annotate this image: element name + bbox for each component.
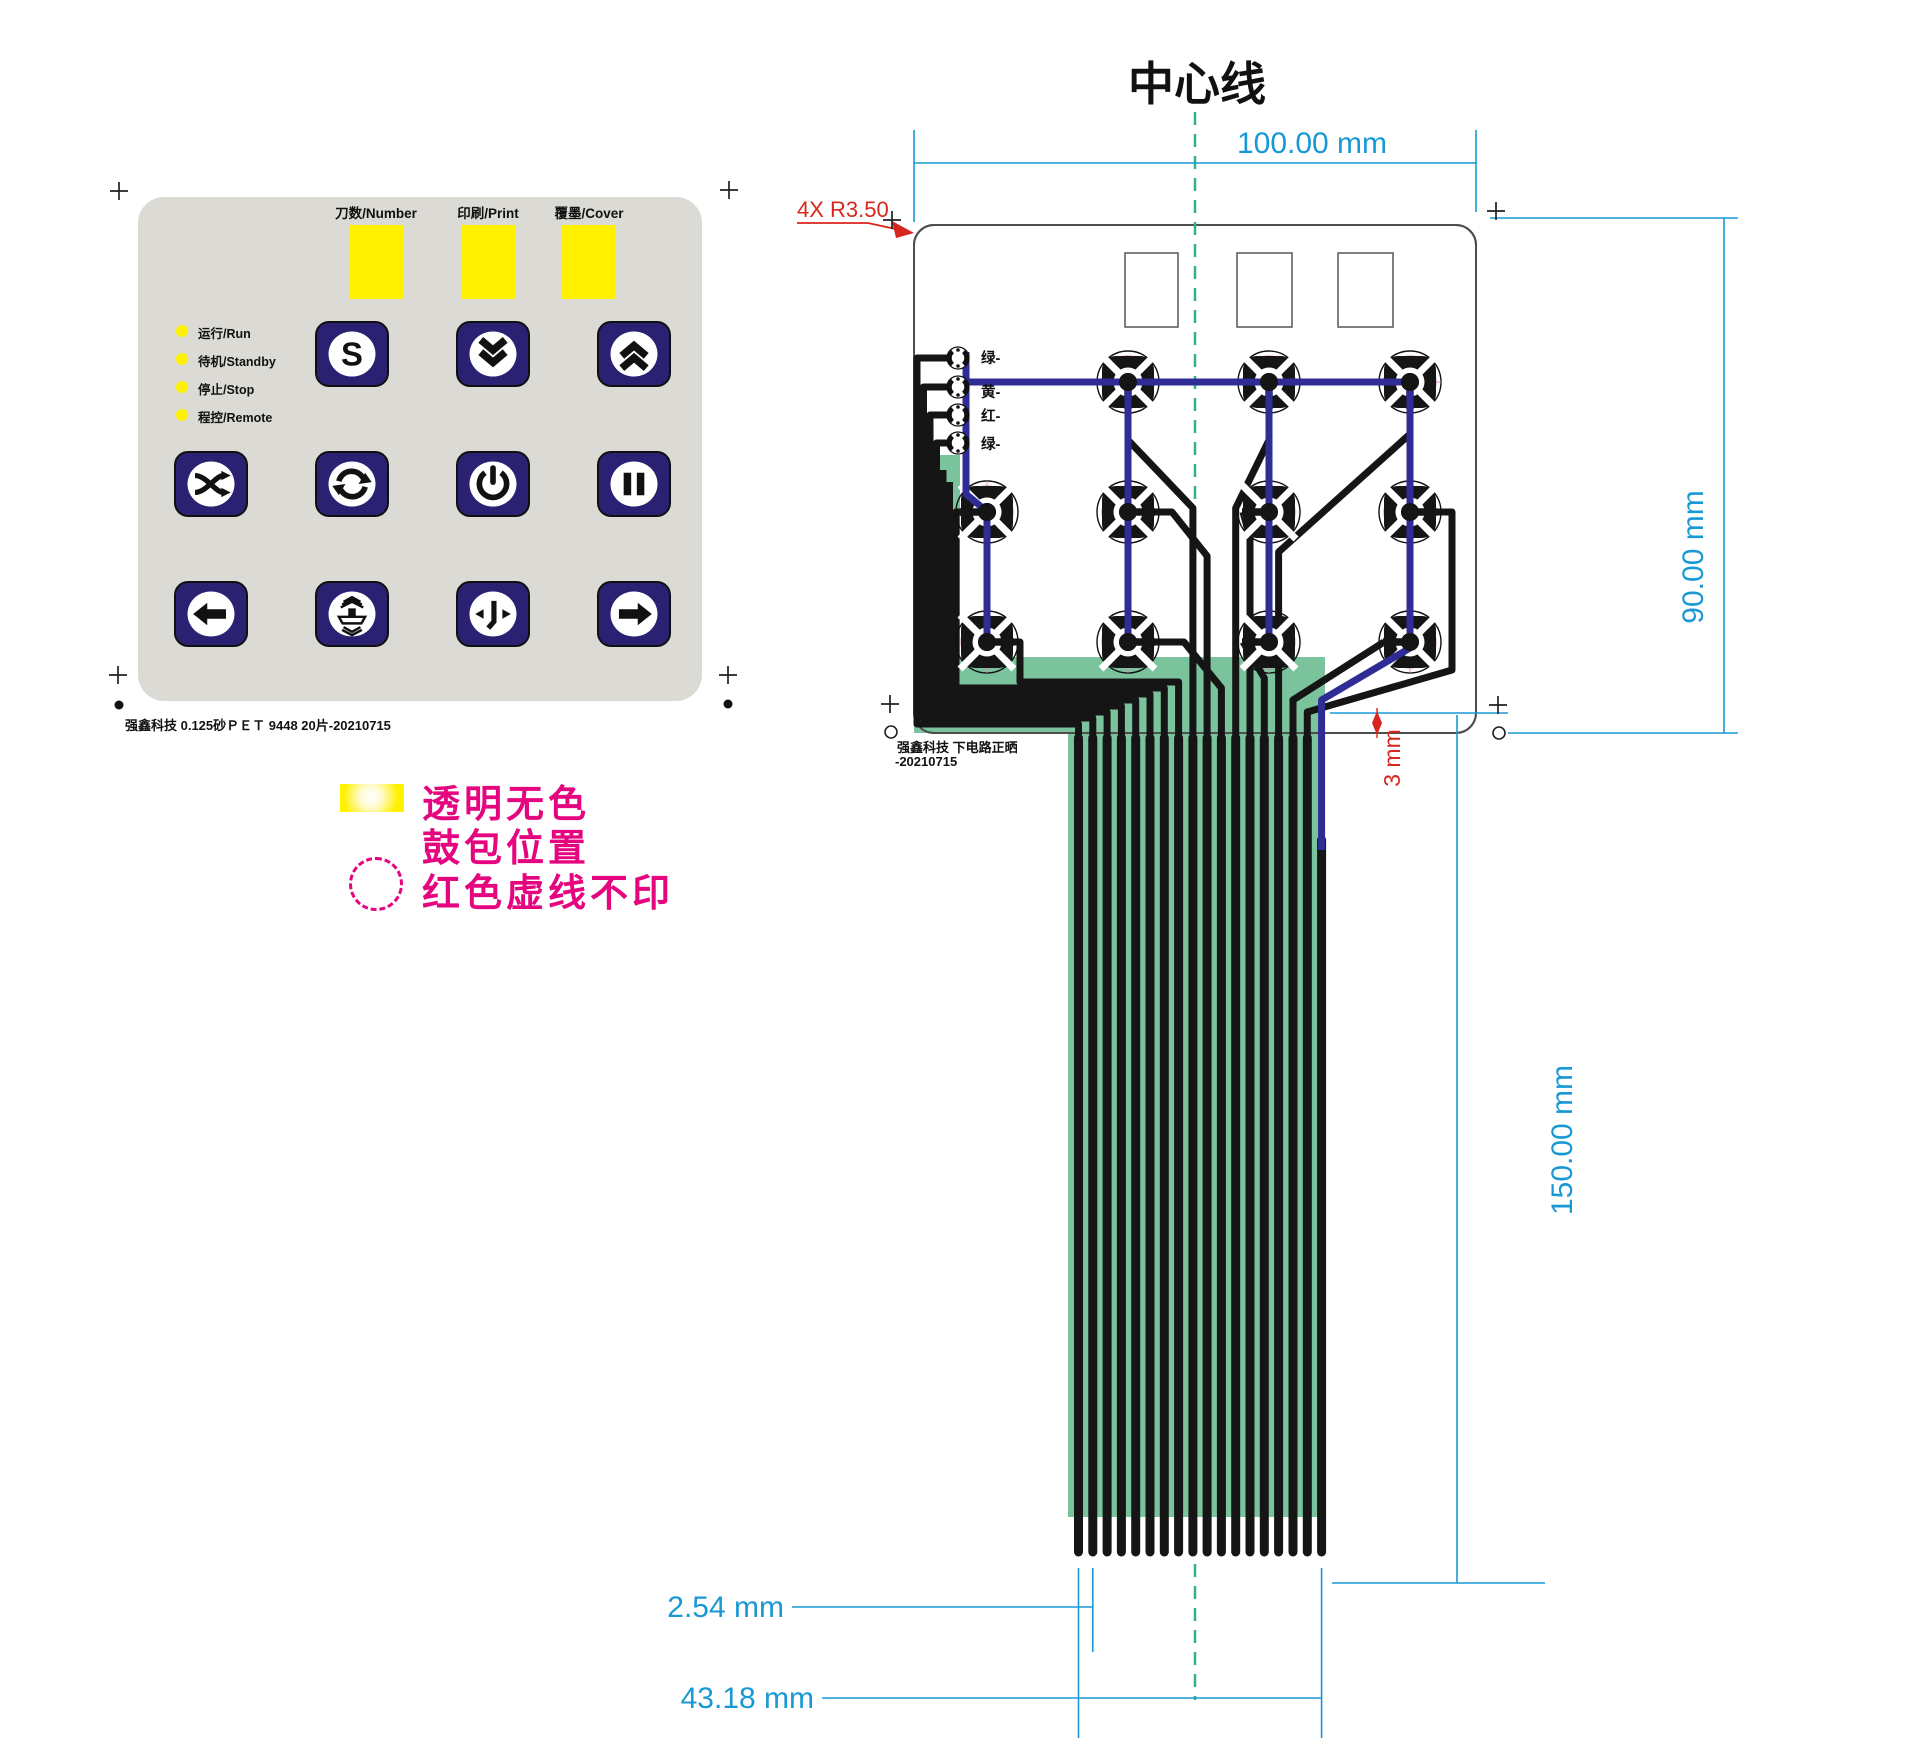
dim-tail-length-label: 150.00 mm: [1546, 1065, 1579, 1215]
registration-dots: [115, 700, 733, 710]
circuit-footer-line2: -20210715: [895, 754, 957, 769]
drawing-canvas: 刀数/Number 印刷/Print 覆墨/Cover 运行/Run 待机/St…: [0, 0, 1920, 1752]
wire-label-green2: 绿-: [981, 435, 1000, 453]
wire-label-green1: 绿-: [981, 349, 1000, 367]
dim-offset-label: 3 mm: [1379, 729, 1405, 787]
dim-width-label: 100.00 mm: [1237, 127, 1387, 160]
corner-radius-note: 4X R3.50: [797, 197, 889, 222]
dim-tail-width-label: 43.18 mm: [681, 1682, 814, 1715]
wire-label-red: 红-: [981, 407, 1000, 425]
dim-height-label: 90.00 mm: [1677, 490, 1710, 623]
dim-tail-width: [822, 1568, 1322, 1738]
dim-tail-length: [1332, 715, 1545, 1583]
circuit-display-windows: [1125, 253, 1393, 327]
corner-radius-arrow: [797, 221, 914, 238]
dim-pitch-label: 2.54 mm: [667, 1591, 784, 1624]
dim-pitch: [792, 1568, 1093, 1738]
dim-height: [1490, 218, 1738, 733]
wire-label-yellow: 黄-: [981, 383, 1000, 401]
drawing-title: 中心线: [1128, 58, 1266, 110]
circuit-drawing: 绿- 黄- 红- 绿- 中心线 100.00 mm 90.00 mm 150.0…: [0, 0, 1920, 1752]
circuit-footer-line1: 强鑫科技 下电路正晒: [897, 740, 1018, 755]
